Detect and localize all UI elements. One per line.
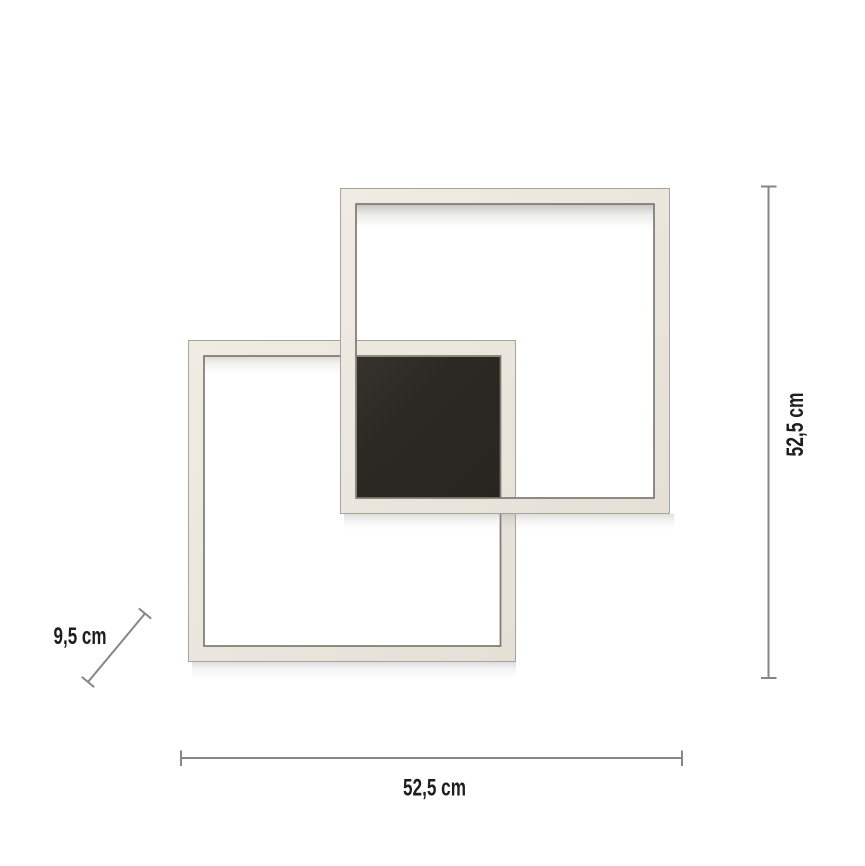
svg-text:52,5 cm: 52,5 cm [782,393,809,457]
svg-text:9,5 cm: 9,5 cm [54,623,107,650]
svg-text:52,5 cm: 52,5 cm [403,775,466,802]
